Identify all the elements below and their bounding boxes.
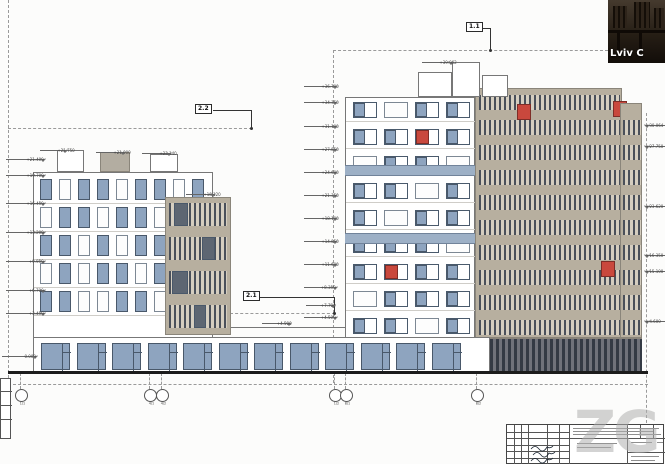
storefront-window [112,343,141,370]
storefront-transom [204,352,213,353]
elevation-label: +4.500 [304,311,336,318]
webcam-caption: Lviv C [610,48,644,59]
red-accent-panel [385,265,398,279]
window-group [446,102,470,118]
podium-louvered [490,337,642,374]
elevation-label: 0.000 [2,350,36,357]
window-pane [447,103,458,117]
webcam-overlay[interactable]: Lviv C [608,0,665,63]
storefront-mullion [169,344,170,371]
elevation-label: +31.100 [304,120,336,127]
storefront-mullion [98,344,99,371]
window [78,179,90,200]
louver-band [479,145,620,160]
right-building-facade [345,97,475,340]
window-group [446,318,470,334]
storefront-window [396,343,425,370]
window-pane [416,265,427,279]
louver-band [479,220,620,235]
window [97,235,109,256]
grid-axis-bubble: 1/1 [15,389,28,402]
floor-slab-line [346,202,476,203]
storefront-transom [169,352,178,353]
roof-structure [100,152,130,172]
louver-band [479,270,620,285]
grid-axis-label: 4/1 [149,402,154,406]
boundary-dashed-line [8,128,252,129]
elevation-label: +39.062 [422,56,452,63]
window [78,291,90,312]
storefront-mullion [417,344,418,371]
marker-leader-line [251,110,252,128]
elevation-label: +36.700 [304,80,336,87]
window-group [415,318,439,334]
louver-band [623,195,641,210]
grid-leader-line [334,373,335,389]
window-group [384,129,408,145]
window [135,291,147,312]
red-accent-panel [517,104,531,120]
elevation-label: +11.600 [304,258,336,265]
window [135,235,147,256]
louver-band [623,245,641,260]
roof-structure [418,72,452,97]
window-group [446,291,470,307]
elevation-label: +21.400 [6,153,44,160]
floor-slab-line [346,148,476,149]
window-group [353,210,377,226]
window [97,207,109,228]
grid-leader-line [161,373,162,389]
window-pane [416,292,427,306]
boundary-dashed-line [333,50,608,51]
storefront-transom [98,352,107,353]
window [135,179,147,200]
elevation-label: +18.120 [186,188,214,195]
elevation-drawing-canvas: 2.2 1.1 2.1 ZG Lviv C +21.750+21.900+23.… [0,0,665,464]
window-pane [447,184,458,198]
storefront-window [325,343,354,370]
storefront-mullion [204,344,205,371]
elevation-label: +6.700 [6,284,44,291]
louver-band [623,295,641,310]
window-pane [354,211,365,225]
storefront-mullion [62,344,63,371]
window-group [384,264,408,280]
storefront-transom [346,352,355,353]
grid-leader-line [20,373,21,389]
red-accent-panel [416,130,429,144]
window-pane [354,103,365,117]
window [78,207,90,228]
side-stamp-line [1,419,12,420]
louver-band [623,170,641,185]
window-group [353,183,377,199]
ground-line [8,371,648,374]
elevation-label: +27.750 [646,140,665,147]
elevation-label: +4.500 [262,317,290,324]
roof-structure [482,75,508,97]
storefront-window [77,343,106,370]
stamp-grid-line [569,425,570,464]
window-group [384,291,408,307]
tower-window [194,305,206,328]
storefront-window [148,343,177,370]
grid-axis-label: 1/1 [20,402,25,406]
section-marker-2-2: 2.2 [195,104,212,114]
section-marker-2-1: 2.1 [243,291,260,301]
louver-band [479,295,620,310]
storefront-transom [133,352,142,353]
window [135,207,147,228]
elevation-label: +19.700 [6,169,44,176]
storefront-mullion [240,344,241,371]
grid-axis-bubble: 4/2 [156,389,169,402]
window-pane [385,130,396,144]
louver-band [479,95,620,110]
louver-band [479,245,620,260]
floor-slab-line [346,121,476,122]
elevation-label: +23.140 [142,147,170,154]
storefront-transom [453,352,462,353]
storefront-transom [417,352,426,353]
window-group [446,210,470,226]
floor-slab-line [346,283,476,284]
elevation-label: +27.850 [304,143,336,150]
stamp-text-bar [657,442,663,443]
storefront-window [290,343,319,370]
boundary-dashed-line [8,0,9,383]
storefront-window [254,343,283,370]
louver-band [623,320,641,335]
floor-slab-line [346,310,476,311]
louver-band [479,195,620,210]
podium-storefront [33,337,490,372]
window [59,179,71,200]
storefront-window [183,343,212,370]
window [116,179,128,200]
elevation-label: +8.350 [304,281,336,288]
louver-band [479,320,620,335]
roof-structure [150,154,178,172]
window [116,263,128,284]
storefront-transom [275,352,284,353]
window-pane [416,103,427,117]
watermark-logo: ZG [574,402,658,462]
window [40,235,52,256]
side-stamp [0,378,11,439]
elevation-label: +13.200 [6,226,44,233]
elevation-label: +24.600 [304,166,336,173]
window-group [415,264,439,280]
window-group [384,318,408,334]
boundary-dashed-line [8,384,648,385]
window-pane [447,292,458,306]
chair-silhouette [654,8,664,28]
roof-structure [452,62,480,97]
window [116,291,128,312]
marker-leader-line [259,297,334,298]
window-pane [416,211,427,225]
marker-leader-line [213,110,251,111]
elevation-label: +23.620 [646,200,665,207]
marker-leader-line [482,28,490,29]
chair-silhouette [634,2,650,28]
window-group [353,102,377,118]
storefront-window [41,343,70,370]
grid-axis-bubble: 8/2 [471,389,484,402]
window [40,207,52,228]
left-building-tan-tower [165,197,231,335]
window-group [415,102,439,118]
storefront-window [219,343,248,370]
window [97,263,109,284]
storefront-transom [62,352,71,353]
window [97,291,109,312]
window-pane [447,211,458,225]
storefront-transom [311,352,320,353]
storefront-mullion [275,344,276,371]
elevation-label: +14.850 [304,235,336,242]
elevation-label: +16.450 [6,197,44,204]
louver-band [623,120,641,135]
window [135,263,147,284]
louver-band [479,170,620,185]
storefront-window [432,343,461,370]
marker-leader-line [490,28,491,50]
elevation-label: +15.100 [646,265,665,272]
marker-leader-dot [250,127,253,130]
right-building-tan-facade [475,88,622,340]
elevation-label: +4.600 [646,315,665,322]
window-group [415,129,439,145]
elevation-label: +30.064 [646,119,665,126]
window-pane [385,184,396,198]
louver-band [169,237,227,260]
elevation-label: +21.350 [304,189,336,196]
window [78,263,90,284]
window [59,207,71,228]
balcony-band [345,165,475,176]
elevation-label: +9.950 [6,255,44,262]
grid-axis-label: 4/2 [161,402,166,406]
side-stamp-line [1,391,12,392]
marker-leader-dot [489,49,492,52]
roof-structure [57,150,84,172]
red-accent-panel [601,261,615,277]
window [116,235,128,256]
window-group [415,183,439,199]
window-group [446,264,470,280]
elevation-label: +18.100 [304,212,336,219]
elevation-label: +3.450 [6,307,44,314]
tower-window [172,271,188,294]
window-group [415,291,439,307]
grid-leader-line [345,373,346,389]
window-group [446,183,470,199]
elevation-label: +21.900 [96,146,124,153]
grid-leader-line [149,373,150,389]
stamp-signatures [507,425,569,464]
window-pane [385,319,396,333]
window-group [353,318,377,334]
grid-axis-label: 8/2 [476,402,481,406]
side-stamp-line [1,405,12,406]
window [78,235,90,256]
window-pane [354,265,365,279]
right-building-tan-step [620,103,642,340]
window-group [384,183,408,199]
window-pane [385,292,396,306]
window [59,235,71,256]
grid-axis-label: 8/1 [345,402,350,406]
storefront-mullion [453,344,454,371]
balcony-band [345,233,475,244]
window [40,263,52,284]
elevation-label: +21.750 [40,144,66,151]
elevation-label: +34.350 [304,96,336,103]
storefront-mullion [382,344,383,371]
grid-leader-line [476,373,477,389]
louver-band [623,220,641,235]
link-roof-line [231,327,345,328]
louver-band [623,145,641,160]
window-pane [354,319,365,333]
storefront-transom [382,352,391,353]
storefront-mullion [311,344,312,371]
window-pane [354,130,365,144]
louver-band [623,270,641,285]
window-group [353,129,377,145]
storefront-transom [240,352,249,353]
grid-axis-label: 1/2 [334,402,339,406]
window [59,291,71,312]
window-group [384,210,408,226]
tower-window [202,237,215,260]
storefront-mullion [133,344,134,371]
window-group [446,129,470,145]
window [97,179,109,200]
window-pane [354,184,365,198]
window [116,207,128,228]
louver-band [479,120,620,135]
window-pane [447,130,458,144]
window-group [353,264,377,280]
window-pane [447,265,458,279]
floor-slab-line [346,256,476,257]
window-group [384,102,408,118]
chair-silhouette [613,6,627,28]
elevation-label: +16.350 [646,249,665,256]
window [59,263,71,284]
section-marker-1-1: 1.1 [466,22,483,32]
storefront-window [361,343,390,370]
storefront-mullion [346,344,347,371]
floor-slab-line [346,229,476,230]
window-group [353,291,377,307]
elevation-label: +7.700 [306,299,334,306]
tower-window [174,203,188,226]
window-group [415,210,439,226]
window-pane [447,319,458,333]
grid-axis-bubble: 8/1 [340,389,353,402]
